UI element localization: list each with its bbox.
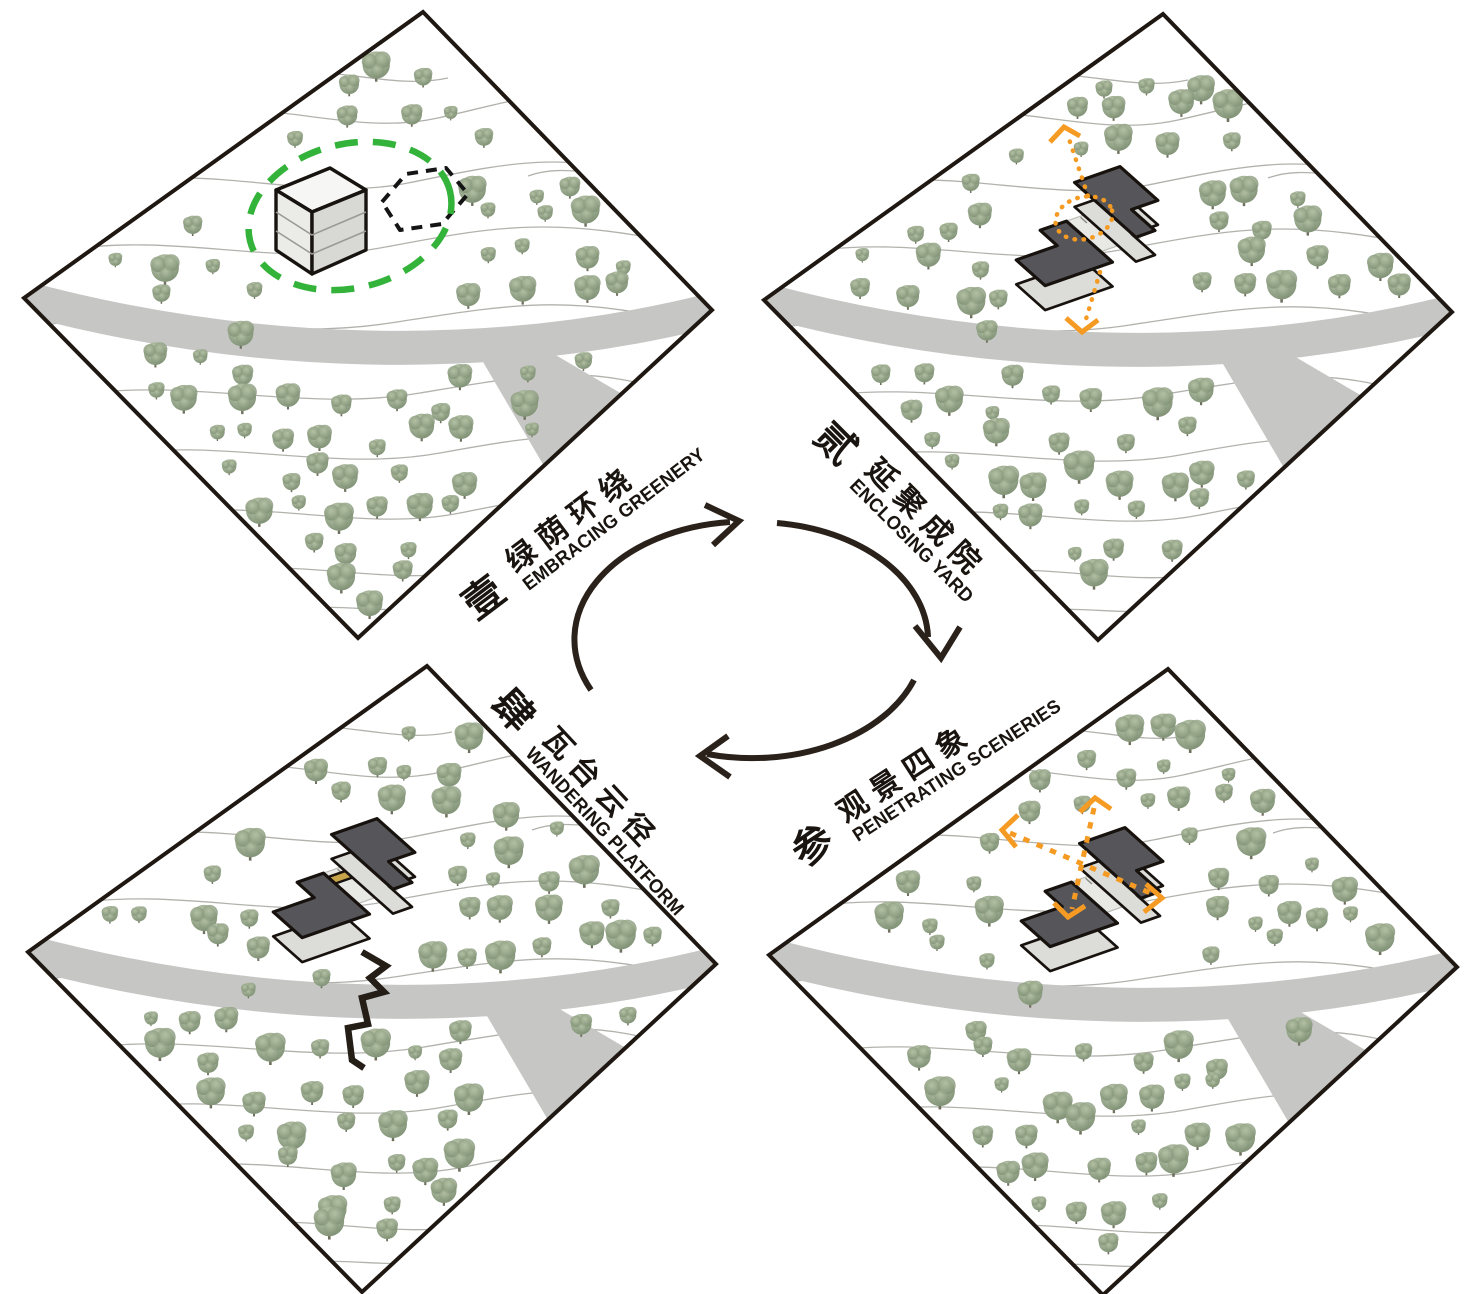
site-plan-wandering-platform — [12, 652, 732, 1294]
site-plan-embracing-greenery — [8, 0, 728, 648]
concept-diagram: 壹 绿荫环绕 EMBRACING GREENERY 贰 延聚成院 ENCLOSI… — [0, 0, 1478, 1294]
site-plan-drawing-3 — [753, 655, 1473, 1294]
site-plan-drawing-1 — [8, 0, 728, 648]
site-plan-drawing-4 — [12, 652, 732, 1294]
site-plan-enclosing-yard — [748, 0, 1468, 650]
site-plan-penetrating-sceneries — [753, 655, 1473, 1294]
site-plan-drawing-2 — [748, 0, 1468, 650]
